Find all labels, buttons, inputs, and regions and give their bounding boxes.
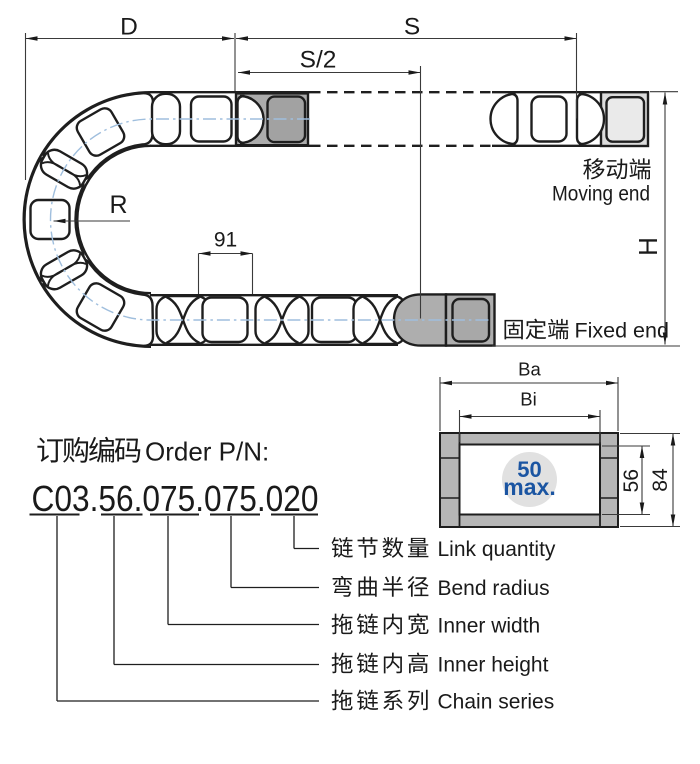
svg-text:Order P/N:: Order P/N: <box>145 437 269 467</box>
svg-text:Fixed end: Fixed end <box>575 319 669 343</box>
svg-text:D: D <box>120 14 138 41</box>
svg-text:Bi: Bi <box>520 388 536 409</box>
svg-text:C03.56.075.075.020: C03.56.075.075.020 <box>32 478 319 519</box>
svg-text:Bend radius: Bend radius <box>438 577 550 600</box>
svg-text:Inner width: Inner width <box>438 615 541 638</box>
svg-text:S/2: S/2 <box>300 47 337 74</box>
svg-text:max.: max. <box>503 474 555 500</box>
svg-text:Ba: Ba <box>518 359 541 380</box>
svg-text:84: 84 <box>649 468 672 492</box>
svg-text:S: S <box>404 14 420 41</box>
svg-text:Moving end: Moving end <box>552 183 650 206</box>
svg-text:Inner height: Inner height <box>438 654 549 677</box>
svg-text:H: H <box>633 237 663 256</box>
svg-text:R: R <box>109 191 127 219</box>
svg-text:Link quantity: Link quantity <box>438 538 556 561</box>
svg-text:56: 56 <box>620 469 643 493</box>
svg-text:91: 91 <box>214 229 237 252</box>
svg-text:Chain series: Chain series <box>438 691 555 714</box>
